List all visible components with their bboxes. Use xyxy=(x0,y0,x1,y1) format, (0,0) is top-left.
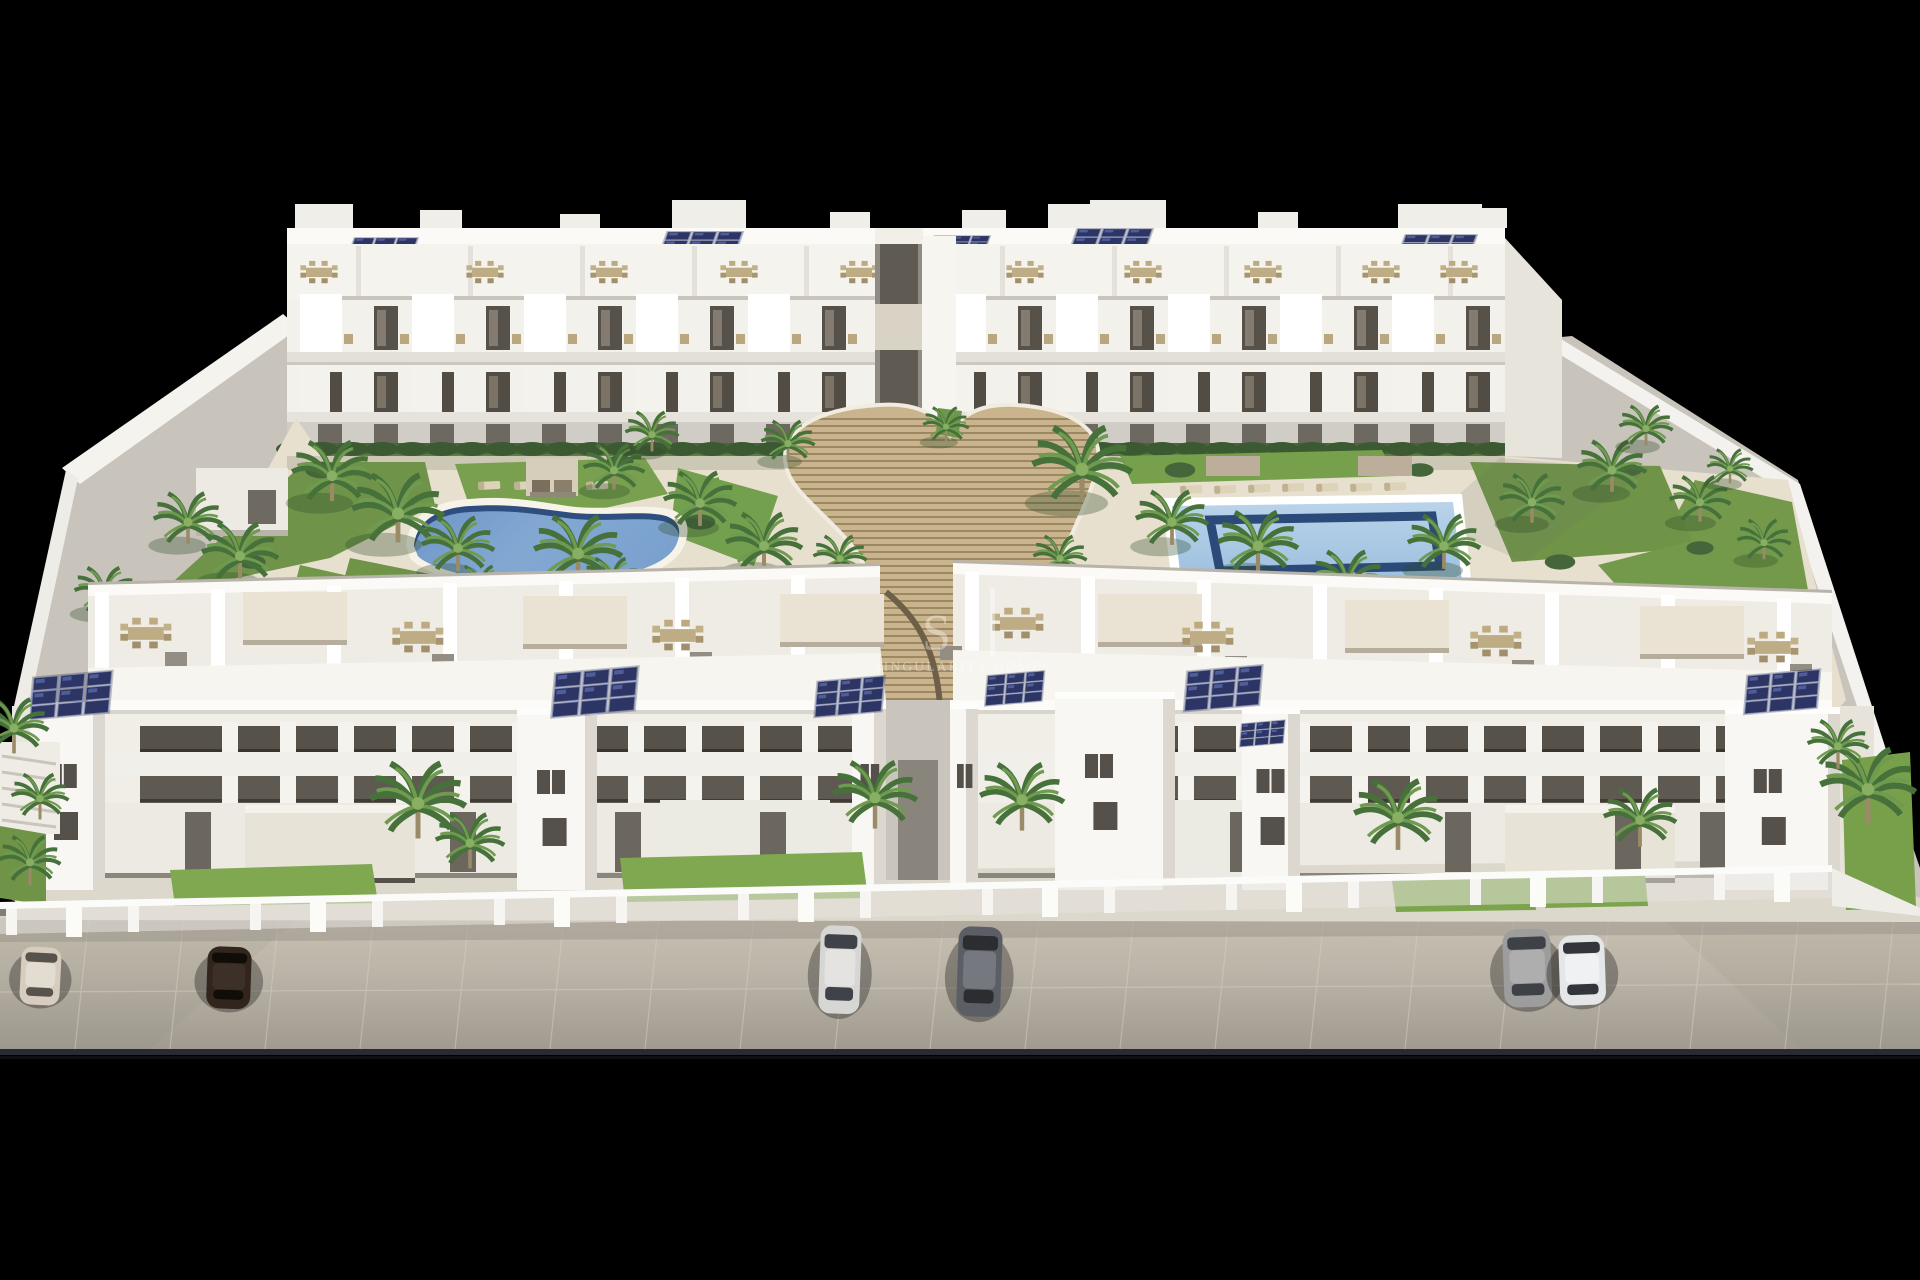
svg-text:SINGULARITY HOMES: SINGULARITY HOMES xyxy=(874,659,1052,674)
svg-text:S: S xyxy=(922,605,951,662)
